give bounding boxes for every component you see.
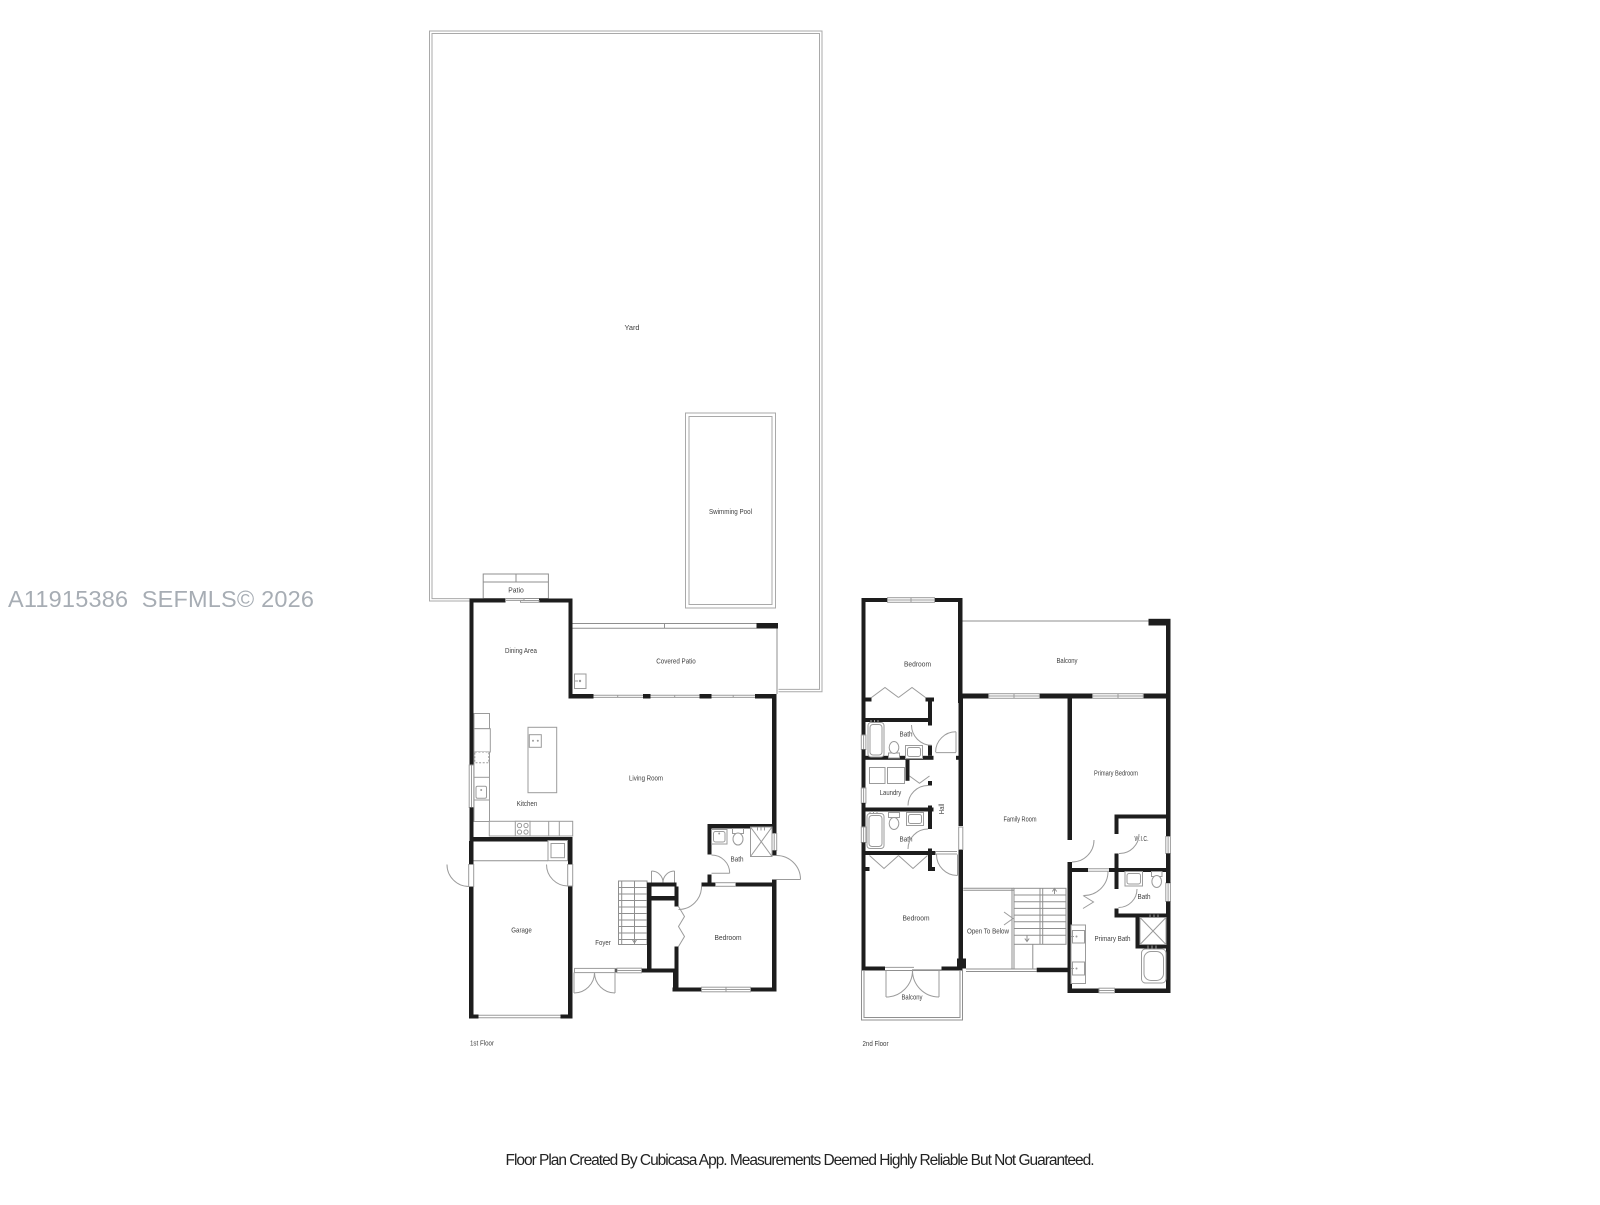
svg-text:Dining Area: Dining Area — [505, 648, 537, 655]
svg-text:Bedroom: Bedroom — [903, 916, 930, 923]
svg-text:Balcony: Balcony — [902, 995, 923, 1002]
svg-text:Balcony: Balcony — [1057, 658, 1078, 665]
svg-text:Hall: Hall — [939, 803, 946, 814]
svg-text:Kitchen: Kitchen — [517, 801, 538, 808]
svg-text:Bath: Bath — [900, 837, 913, 844]
svg-text:1st Floor: 1st Floor — [470, 1041, 495, 1048]
svg-text:Patio: Patio — [508, 588, 524, 595]
svg-text:Family Room: Family Room — [1004, 817, 1037, 824]
svg-text:Swimming Pool: Swimming Pool — [709, 509, 752, 516]
svg-text:Bath: Bath — [900, 732, 913, 739]
svg-text:Primary Bedroom: Primary Bedroom — [1094, 771, 1138, 778]
svg-text:Bedroom: Bedroom — [904, 662, 931, 669]
svg-text:Bath: Bath — [731, 857, 744, 864]
svg-text:A11915386 SEFMLS© 2026: A11915386 SEFMLS© 2026 — [8, 586, 314, 612]
svg-text:Living Room: Living Room — [629, 776, 663, 783]
svg-text:Open To Below: Open To Below — [967, 929, 1009, 936]
svg-text:W.I.C.: W.I.C. — [1135, 836, 1149, 843]
svg-text:Covered Patio: Covered Patio — [656, 659, 696, 666]
svg-text:Bath: Bath — [1138, 894, 1151, 901]
svg-text:Bedroom: Bedroom — [715, 935, 742, 942]
svg-text:Primary Bath: Primary Bath — [1095, 936, 1131, 943]
svg-text:Foyer: Foyer — [595, 940, 611, 947]
svg-text:Laundry: Laundry — [880, 790, 902, 797]
svg-text:Floor Plan Created By Cubicasa: Floor Plan Created By Cubicasa App. Meas… — [506, 1152, 1095, 1169]
svg-text:Yard: Yard — [625, 325, 640, 332]
svg-text:2nd Floor: 2nd Floor — [863, 1041, 890, 1048]
svg-text:Garage: Garage — [511, 928, 532, 935]
